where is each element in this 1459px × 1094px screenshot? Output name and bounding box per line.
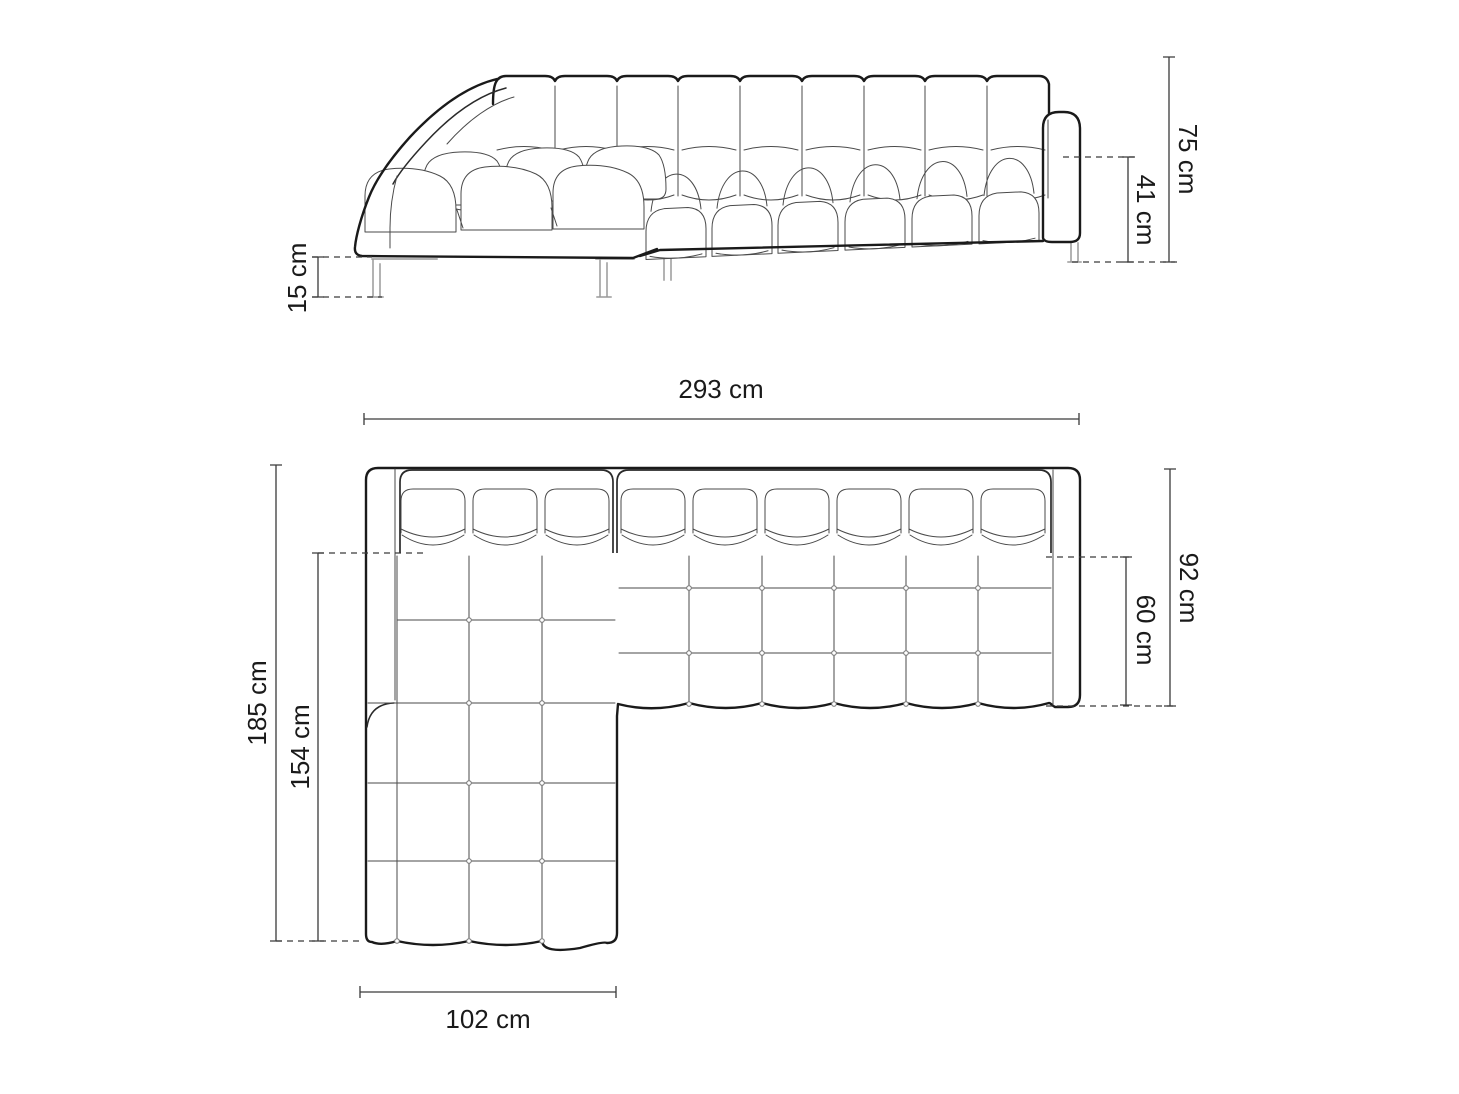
armrest-chaise-junction: [367, 703, 394, 727]
seat-cushion: [778, 166, 838, 253]
back-panel-chaise: [400, 470, 613, 553]
dim-label-seat-height: 41 cm: [1131, 175, 1161, 246]
dim-label-chaise-seat-depth: 154 cm: [285, 704, 315, 789]
chaise-front-cushions: [365, 165, 644, 232]
dim-chaise-depth: 185 cm: [242, 465, 282, 941]
leg-main-right: [1068, 243, 1081, 262]
dim-label-seat-depth: 60 cm: [1131, 595, 1161, 666]
back-cushion: [473, 489, 537, 545]
back-panel-main: [617, 470, 1051, 553]
back-cushion: [909, 489, 973, 545]
dim-line: [364, 413, 1079, 425]
chaise-cushion: [553, 165, 644, 229]
dim-chaise-width: 102 cm: [360, 986, 616, 1034]
dim-seat-height: 41 cm: [1122, 157, 1161, 262]
dim-chaise-seat-depth: 154 cm: [285, 553, 324, 941]
leg-chaise-right: [596, 259, 634, 297]
tuft-buttons: [395, 586, 981, 944]
diagram-canvas: 75 cm 41 cm 15 cm: [0, 0, 1459, 1094]
right-armrest: [1043, 112, 1080, 242]
back-cushion: [693, 489, 757, 545]
seat-cushion: [845, 163, 905, 250]
dim-seat-depth: 60 cm: [1120, 557, 1161, 705]
back-cushion: [545, 489, 609, 545]
seat-cushion: [912, 160, 972, 247]
dim-leg-height: 15 cm: [282, 243, 324, 314]
front-sofa-drawing: [355, 76, 1081, 297]
top-view: 293 cm 185 cm 154 cm 92 cm 60 cm 102 cm: [242, 374, 1204, 1034]
dim-total-width: 293 cm: [364, 374, 1079, 425]
dim-line: [1120, 557, 1132, 705]
top-outline: [366, 468, 1080, 950]
backrest-creases: [497, 147, 1045, 151]
dim-total-depth: 92 cm: [1164, 469, 1204, 706]
dim-label-chaise-width: 102 cm: [445, 1004, 530, 1034]
top-dim-extensions: [276, 553, 1178, 941]
main-seat-cushions: [646, 157, 1039, 260]
backrest-top-edge: [493, 76, 1049, 114]
dim-line: [360, 986, 616, 998]
seat-cushion: [979, 157, 1039, 244]
dim-total-height: 75 cm: [1163, 57, 1203, 262]
dim-label-leg-height: 15 cm: [282, 243, 312, 314]
back-cushion: [981, 489, 1045, 545]
leg-chaise-left: [369, 259, 437, 297]
back-cushion: [621, 489, 685, 545]
top-sofa-drawing: [366, 468, 1080, 950]
back-cushion: [837, 489, 901, 545]
back-cushion: [765, 489, 829, 545]
front-view: 75 cm 41 cm 15 cm: [282, 57, 1203, 313]
back-cushion: [401, 489, 465, 545]
dim-line: [312, 257, 324, 297]
dim-label-total-width: 293 cm: [678, 374, 763, 404]
sofa-dimension-diagram: 75 cm 41 cm 15 cm: [0, 0, 1459, 1094]
dim-label-total-depth: 92 cm: [1174, 553, 1204, 624]
seat-cushion: [712, 170, 772, 257]
chaise-cushion: [461, 166, 552, 230]
top-back-cushions: [401, 489, 1045, 545]
dim-label-chaise-depth: 185 cm: [242, 660, 272, 745]
dim-label-total-height: 75 cm: [1173, 124, 1203, 195]
